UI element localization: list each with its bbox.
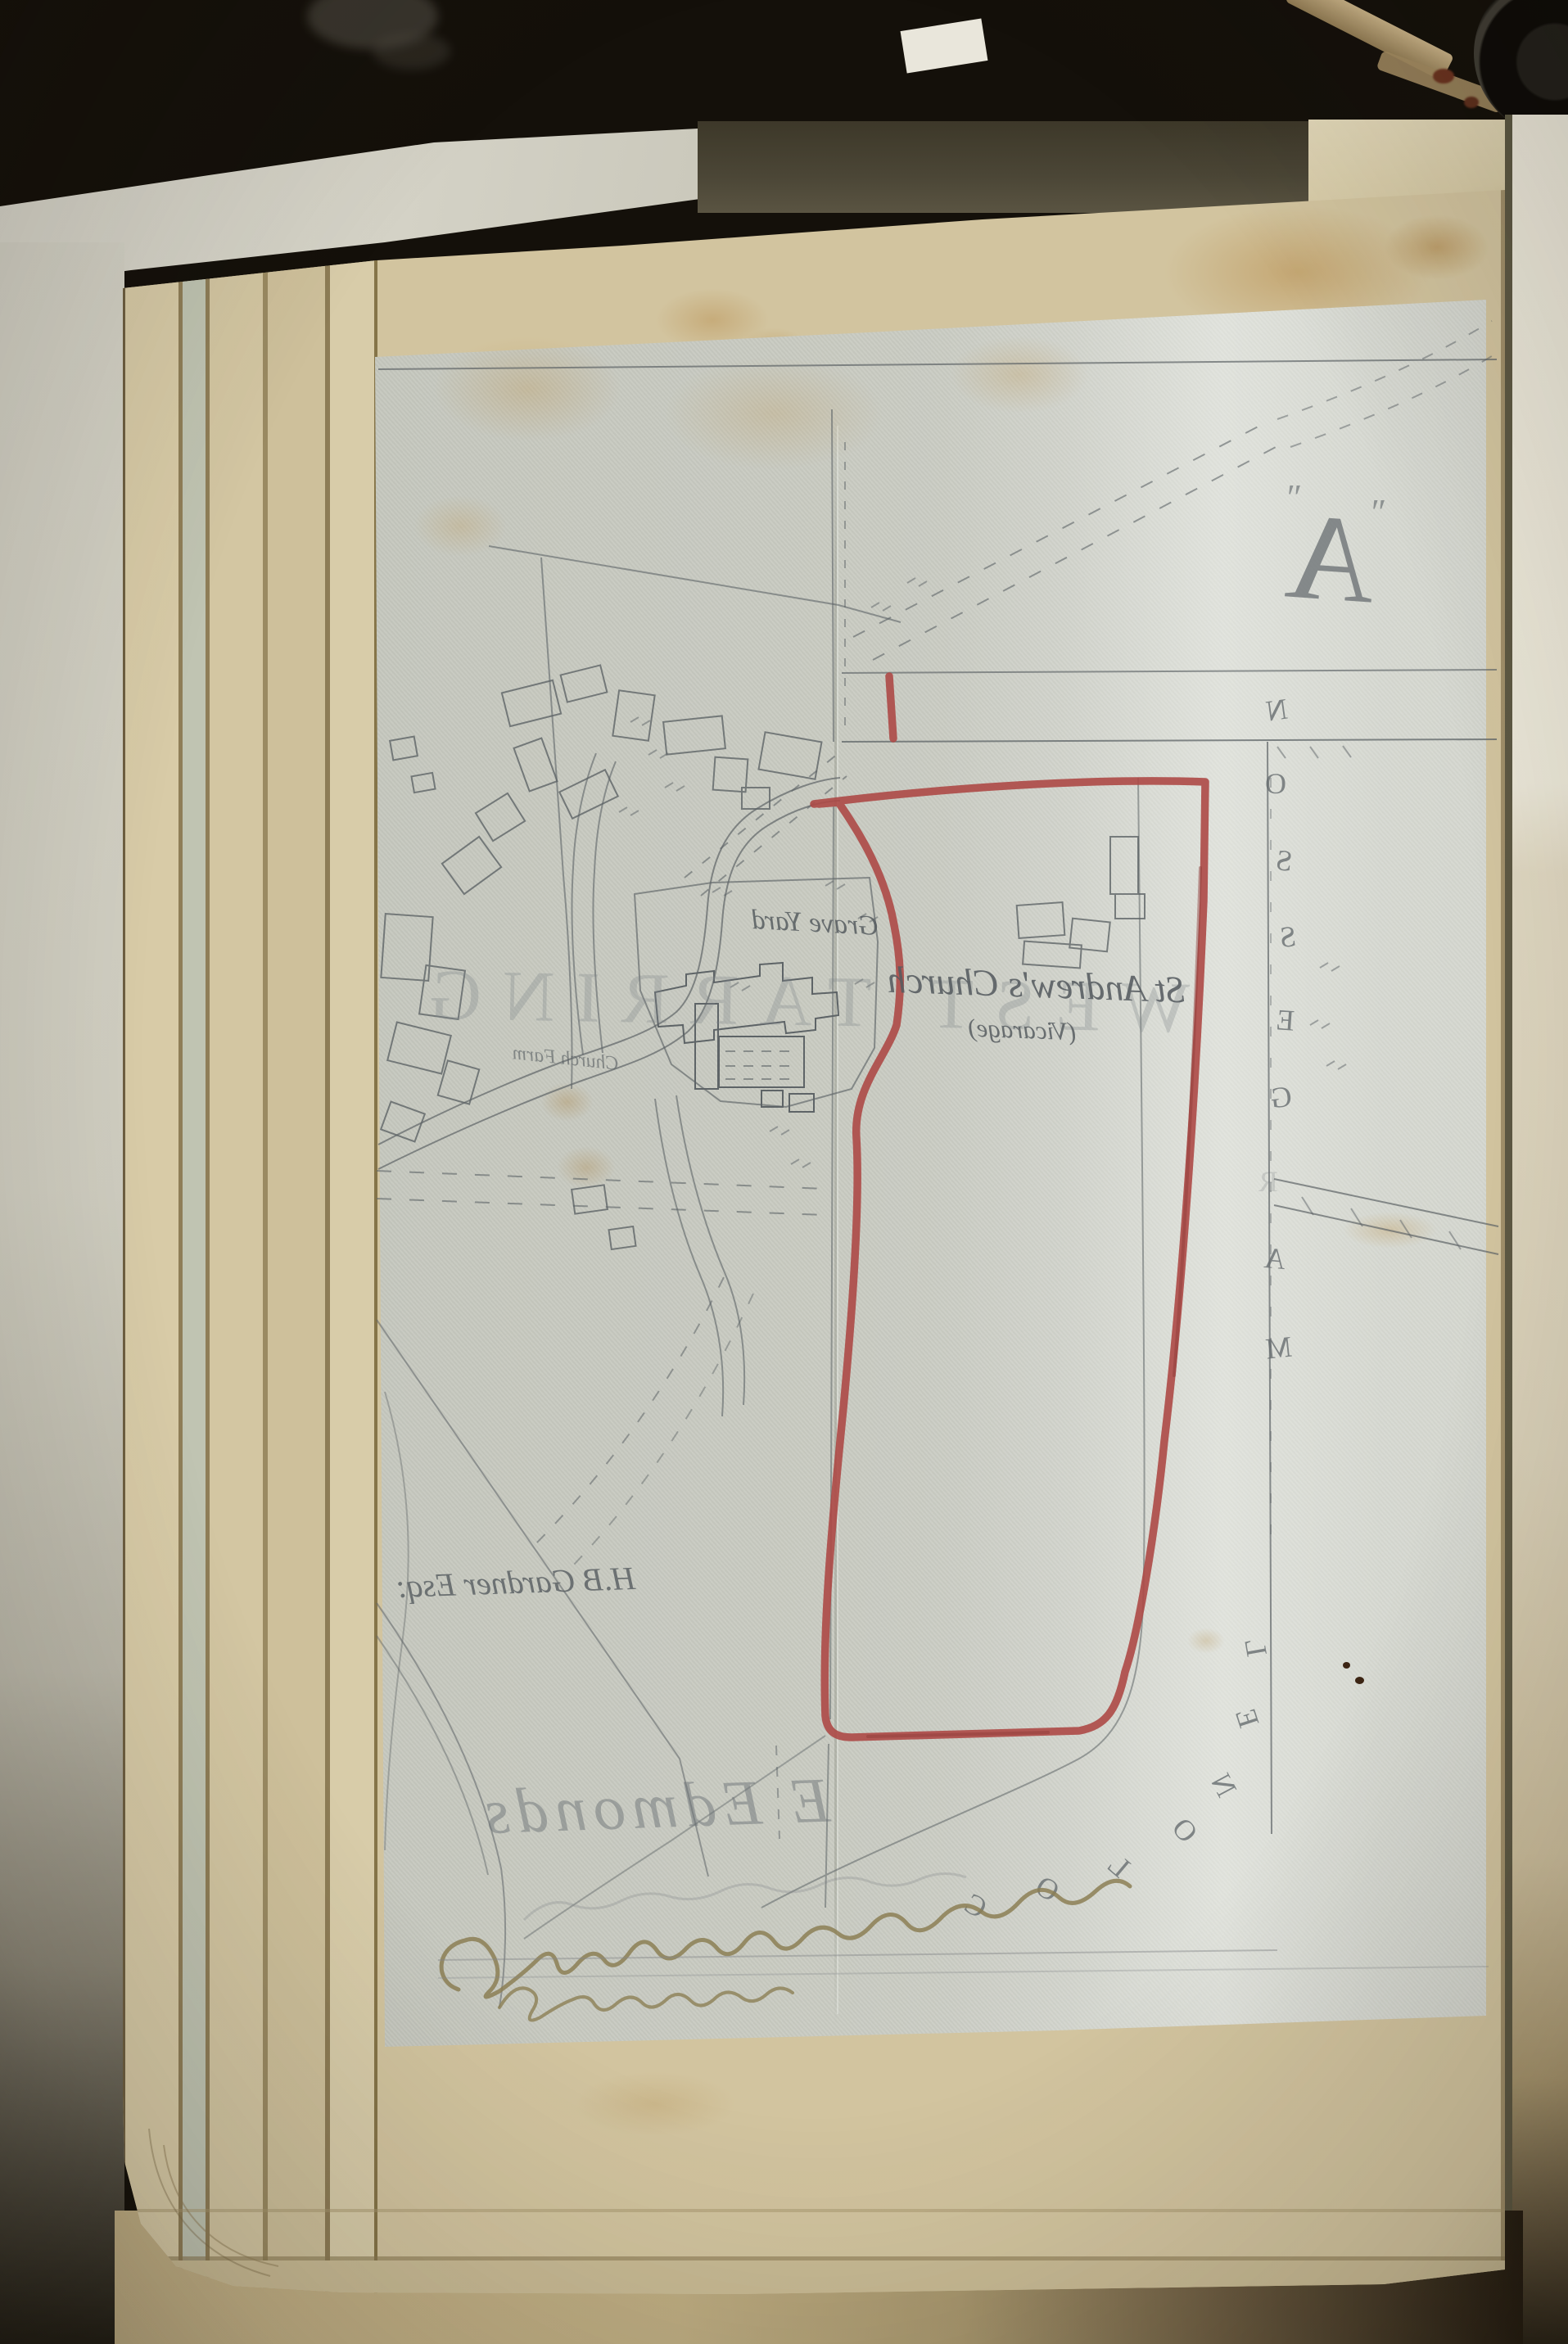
road-letter: L <box>1101 1847 1136 1884</box>
road-letter: M <box>1264 1330 1294 1366</box>
road-letter: O <box>1166 1811 1204 1849</box>
exhibit-quote-right: ″ <box>1371 492 1386 532</box>
road-name-letters-margesson: M A R G E S S O N <box>1258 693 1298 1366</box>
owner-west-label-mirrored: H.B Gardner Esq: <box>395 1560 636 1605</box>
red-glebe-boundary <box>814 676 1205 1737</box>
archival-photo-of-bound-map: WEST TARRING Grave Yard St Andrew's Chur… <box>0 0 1568 2344</box>
road-letter: S <box>1278 919 1298 954</box>
village-streets <box>378 753 840 1416</box>
page-corner-wear <box>149 2129 278 2276</box>
signature-block: E Edmonds <box>438 1764 1489 2021</box>
road-letter: E <box>1229 1705 1266 1732</box>
road-letter: N <box>1264 693 1290 728</box>
pencil-signature-mirrored: E Edmonds <box>477 1764 832 1848</box>
road-letter: S <box>1274 843 1294 878</box>
road-letter: A <box>1263 1241 1286 1276</box>
vicarage-label-mirrored: (Vicarage) <box>968 1014 1077 1046</box>
map-tracing-drawing: WEST TARRING Grave Yard St Andrew's Chur… <box>0 0 1568 2344</box>
road-letter: N <box>1204 1768 1244 1802</box>
map-labels: WEST TARRING Grave Yard St Andrew's Chur… <box>395 477 1386 1605</box>
road-letter: O <box>1265 767 1286 800</box>
exhibit-quote-left: ″ <box>1287 477 1302 517</box>
road-letter: R <box>1258 1165 1278 1198</box>
road-letter: L <box>1238 1636 1273 1660</box>
road-letter: E <box>1275 1003 1295 1037</box>
graveyard-label-mirrored: Grave Yard <box>750 905 879 942</box>
road-letter: G <box>1268 1080 1294 1115</box>
